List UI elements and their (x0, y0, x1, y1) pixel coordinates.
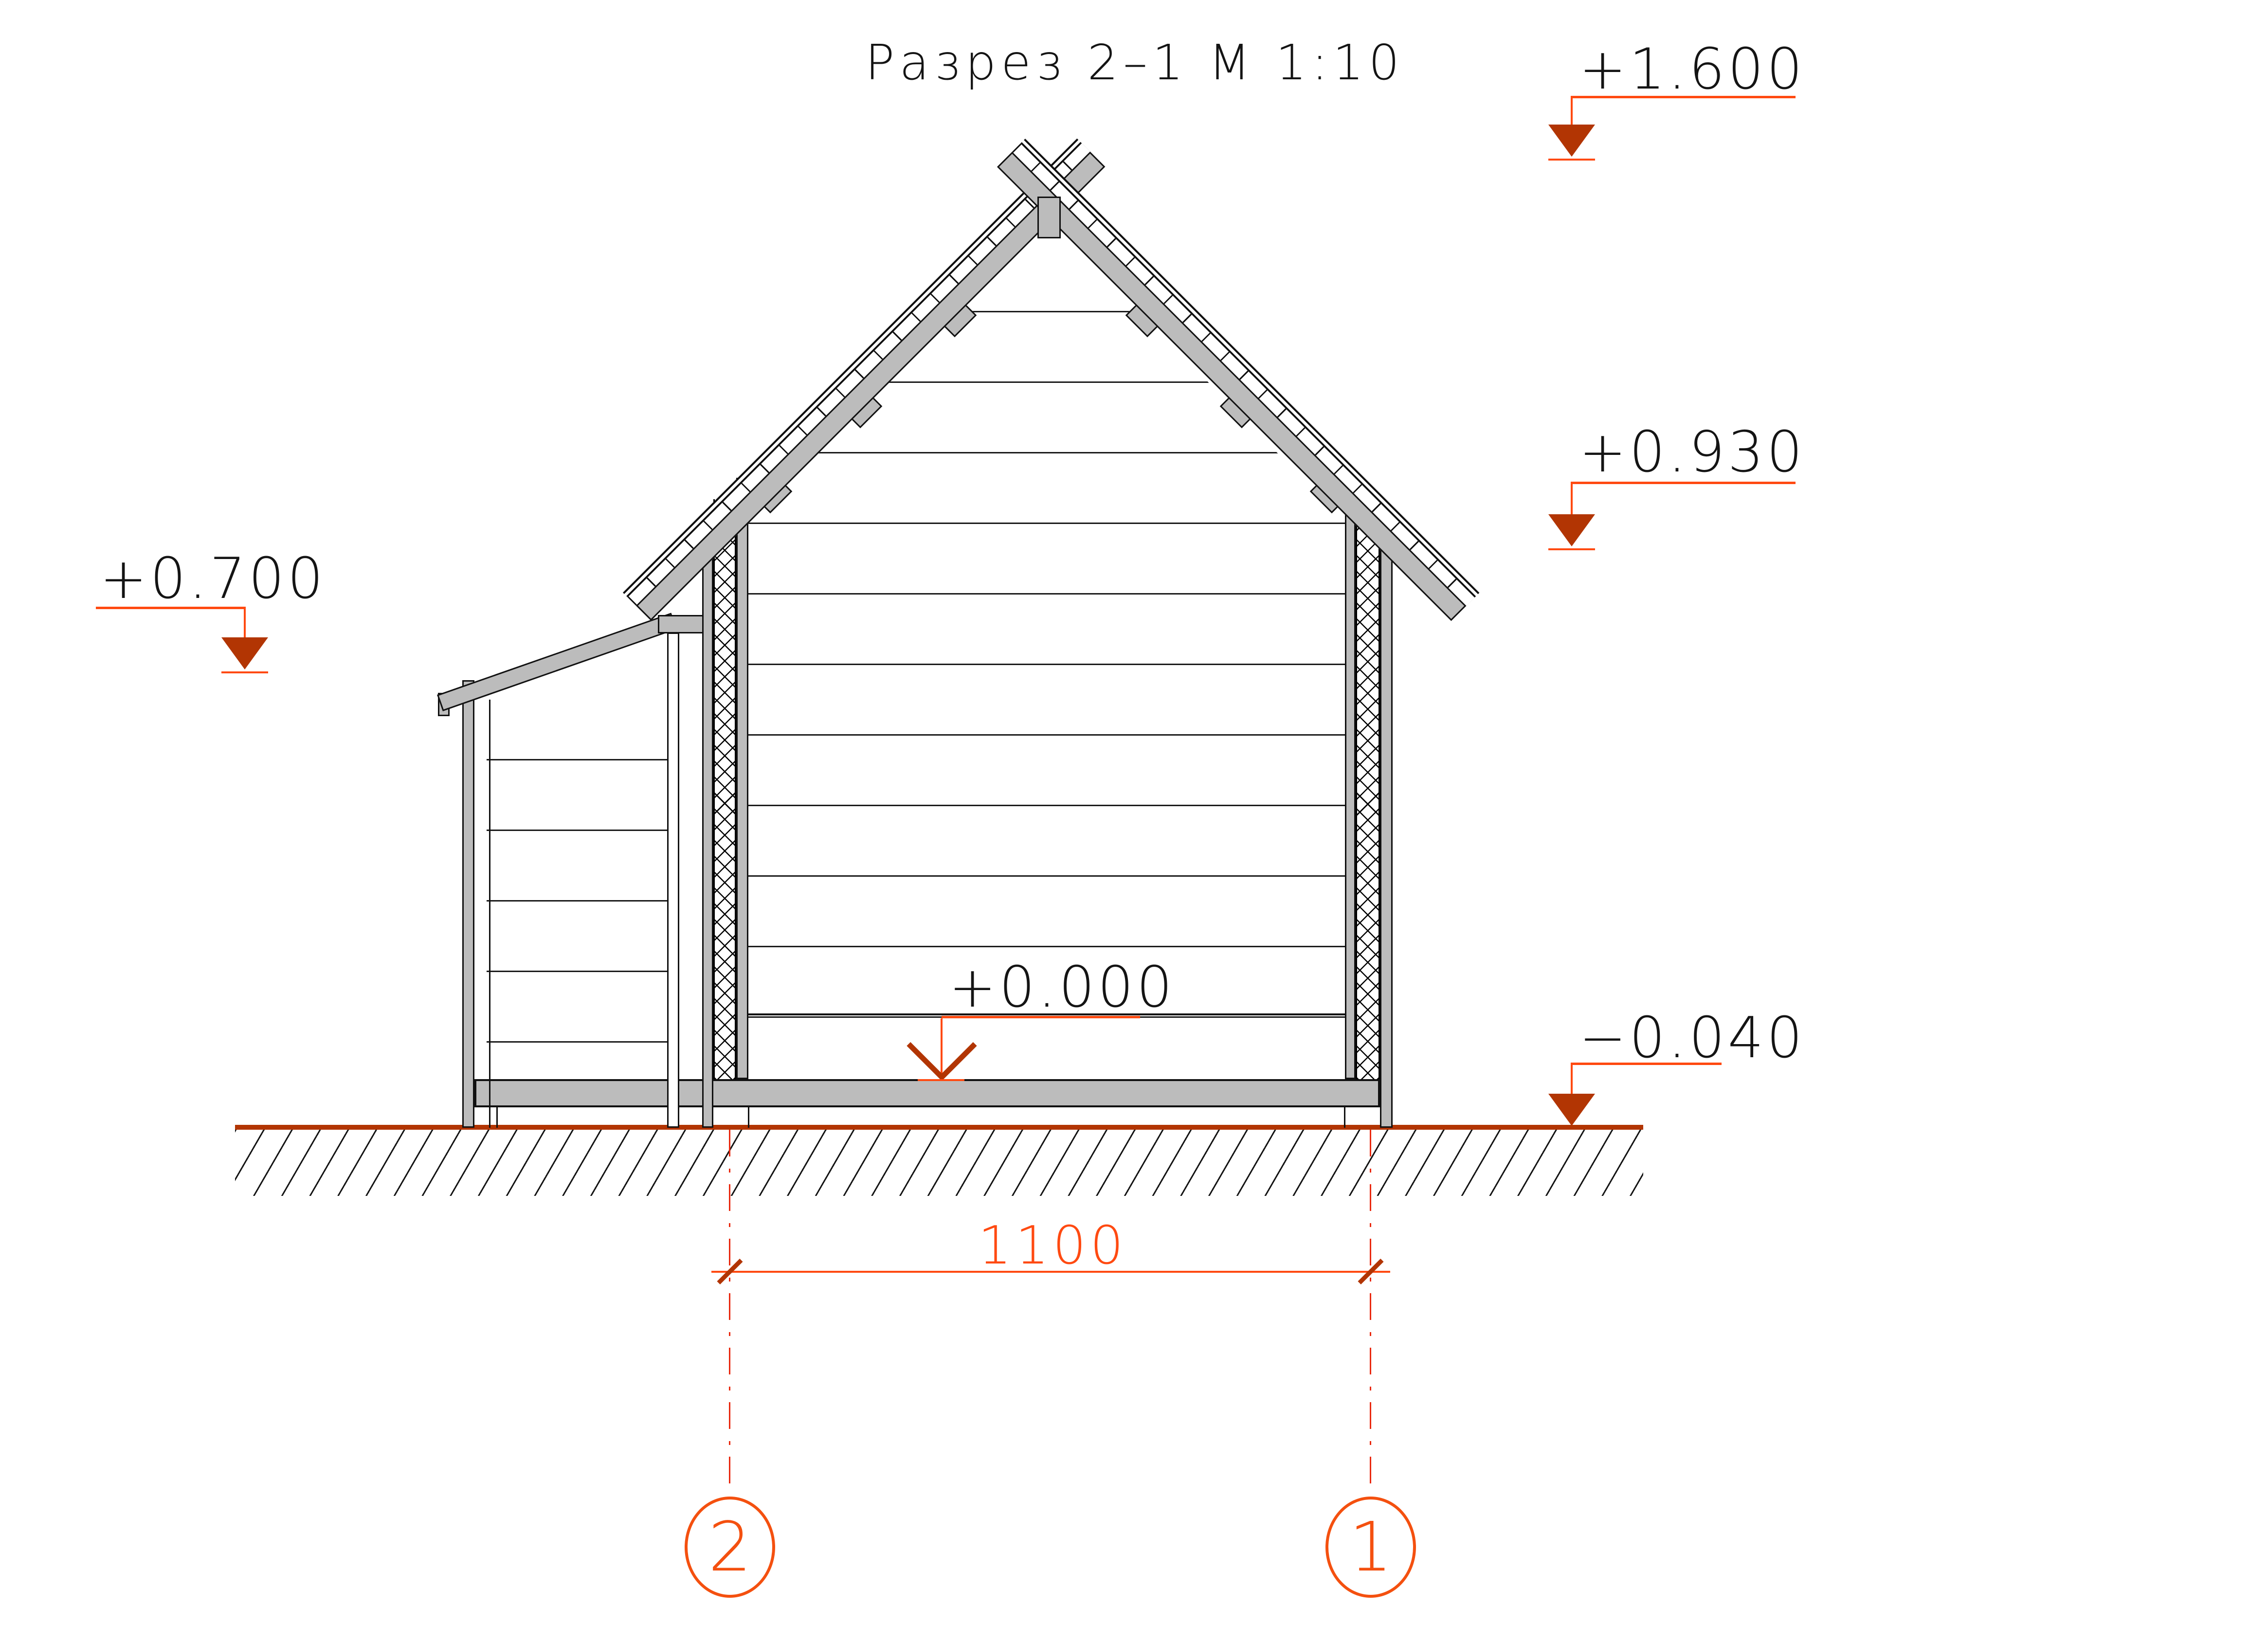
soil-hatch (235, 1130, 1643, 1196)
right-wall-insulation (1356, 499, 1380, 1079)
axis-1-number: 1 (1349, 1508, 1392, 1587)
shed-left-post (462, 680, 474, 1128)
dimension-line (711, 1271, 1390, 1273)
level-shed-triangle (221, 637, 268, 669)
level-ground-leader (1571, 1063, 1722, 1065)
shed-right-post (667, 632, 679, 1128)
left-wall-foundation-line (748, 1107, 749, 1128)
level-ground-triangle (1548, 1094, 1595, 1126)
left-wall-insulation (713, 499, 736, 1079)
level-eaves-drop (1571, 484, 1573, 514)
section-drawing-canvas: Разрез 2–1 М 1:10 +1.600 (0, 0, 2268, 1643)
drawing-title: Разрез 2–1 М 1:10 (865, 34, 1404, 91)
shed-inner-post-line (489, 700, 490, 1128)
level-floor-tip-line (918, 1079, 964, 1081)
level-ridge-triangle (1548, 125, 1595, 157)
level-eaves-tip-line (1548, 548, 1595, 550)
main-wall-boards (748, 242, 1345, 1018)
level-ridge-label: +1.600 (1579, 36, 1805, 102)
level-floor-arrow-right (939, 1042, 977, 1080)
floor-platform (474, 1079, 1380, 1107)
level-eaves-label: +0.930 (1579, 419, 1805, 485)
level-floor-label: +0.000 (949, 955, 1175, 1020)
shed-foundation-line (496, 1107, 498, 1128)
axis-bubble-2: 2 (685, 1497, 775, 1598)
shed-wall-boards (487, 690, 667, 1079)
level-floor-leader (942, 1016, 1140, 1018)
ridge-block (1037, 197, 1061, 238)
level-floor-arrow-left (907, 1042, 944, 1080)
axis-1-dash-line (1370, 1130, 1371, 1496)
level-eaves-leader (1571, 482, 1796, 484)
level-floor-drop (941, 1018, 943, 1080)
level-shed-tip-line (221, 671, 268, 673)
level-ridge-drop (1571, 98, 1573, 126)
axis-2-dash-line (729, 1130, 730, 1496)
left-wall-inner-stud (736, 478, 748, 1079)
axis-2-number: 2 (708, 1508, 751, 1587)
right-wall-outer-stud (1380, 516, 1393, 1128)
level-ridge-leader (1571, 96, 1796, 98)
level-eaves-triangle (1548, 514, 1595, 546)
level-shed-drop (244, 609, 246, 637)
right-wall-inner-stud (1345, 478, 1356, 1079)
right-wall-foundation-line (1344, 1107, 1345, 1128)
level-ridge-tip-line (1548, 159, 1595, 161)
level-shed-leader (96, 607, 246, 609)
level-ground-label: −0.040 (1579, 1005, 1805, 1071)
axis-bubble-1: 1 (1325, 1497, 1416, 1598)
dimension-value: 1100 (978, 1215, 1127, 1276)
left-wall-outer-stud (702, 516, 713, 1128)
level-ground-drop (1571, 1065, 1573, 1094)
level-shed-label: +0.700 (100, 546, 326, 612)
ground-level-line (235, 1125, 1643, 1130)
